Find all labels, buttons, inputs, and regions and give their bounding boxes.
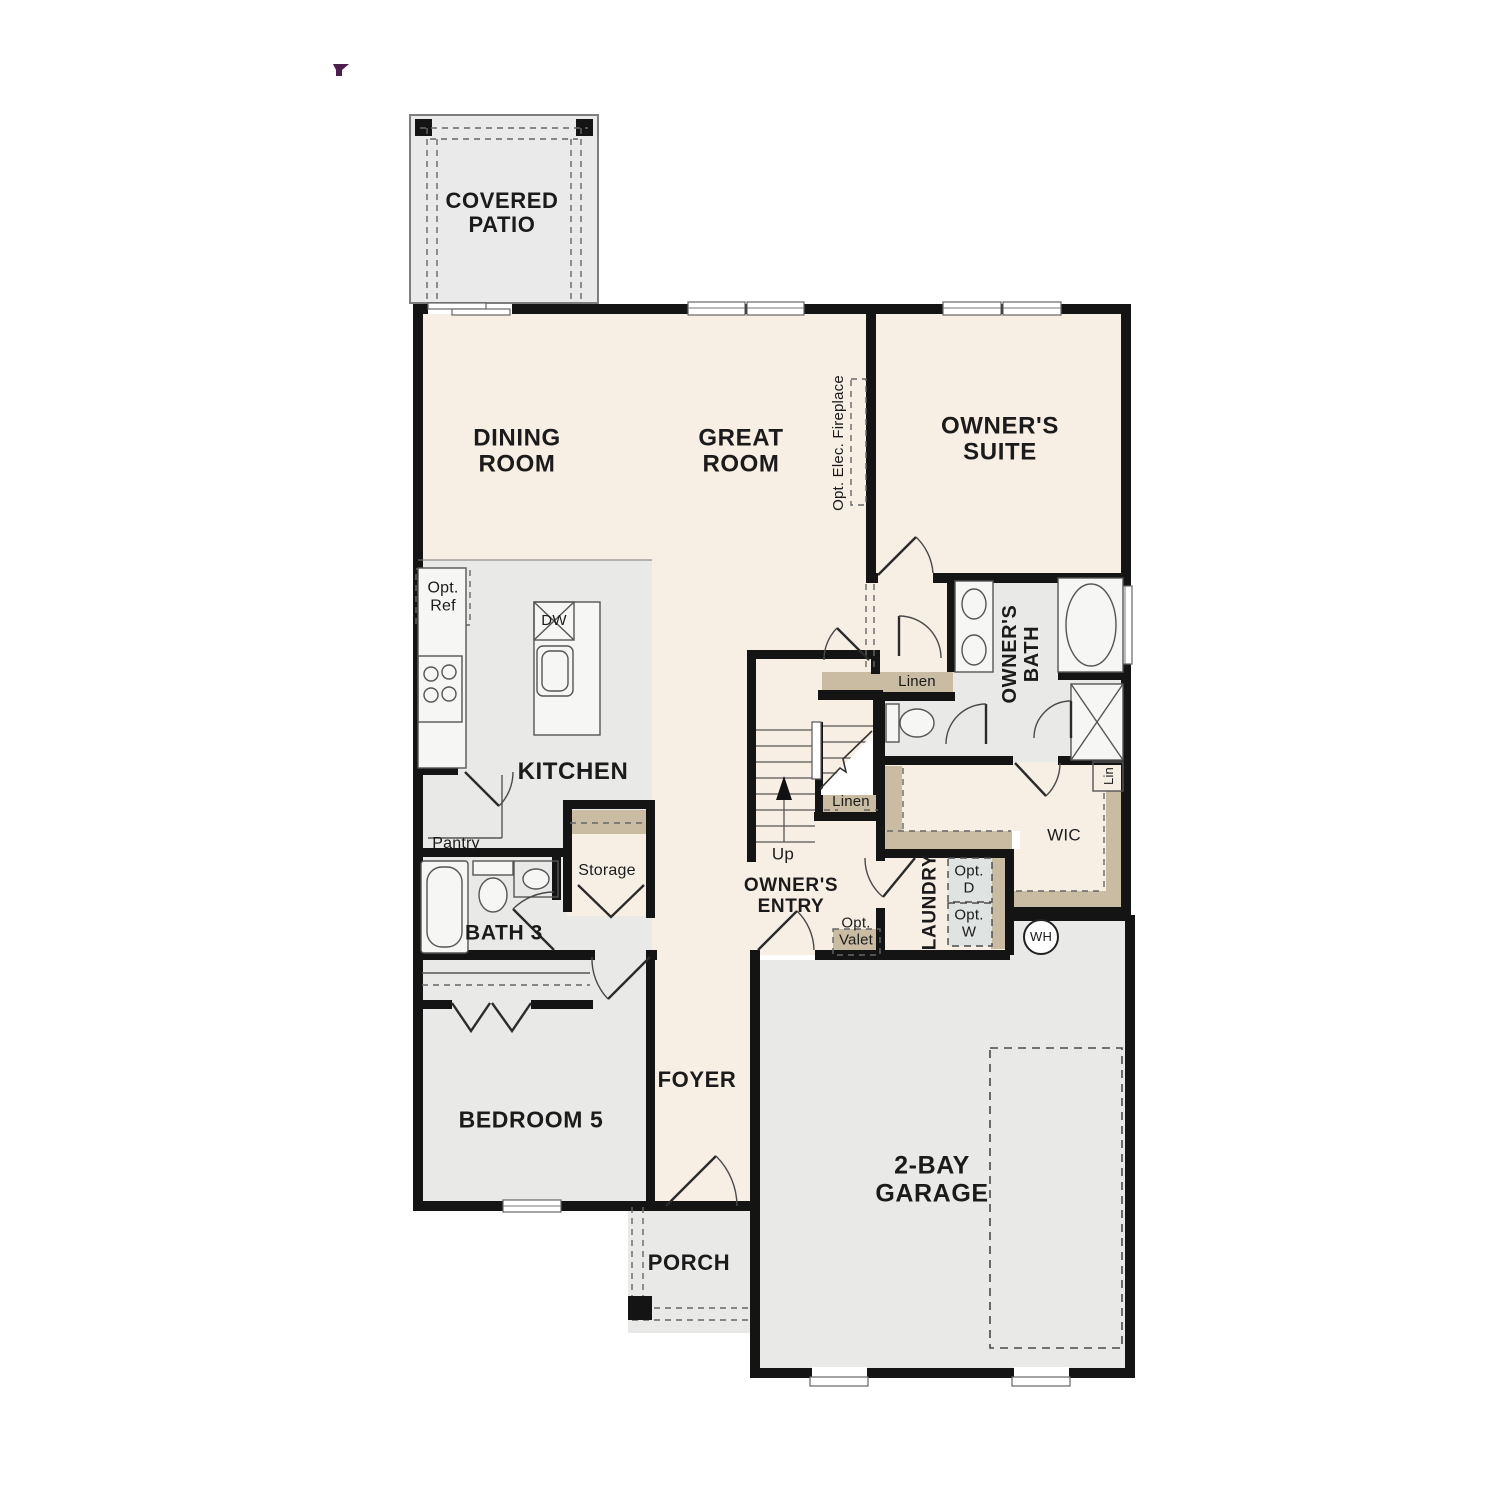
- room-label-bath3: BATH 3: [465, 921, 543, 944]
- floor-plan-canvas: COVERED PATIO DINING ROOM GREAT ROOM Opt…: [0, 0, 1500, 1500]
- room-label-great: GREAT ROOM: [698, 426, 783, 479]
- room-label-covered-patio: COVERED PATIO: [446, 189, 559, 237]
- callout-wic: WIC: [1047, 827, 1081, 846]
- laundry-shelf: [991, 857, 1005, 949]
- room-label-bedroom5: BEDROOM 5: [459, 1107, 604, 1132]
- room-label-owners-suite: OWNER'S SUITE: [941, 414, 1059, 467]
- callout-storage: Storage: [578, 862, 635, 880]
- callout-opt-valet: Opt. Valet: [839, 916, 873, 949]
- room-label-garage: 2-BAY GARAGE: [875, 1153, 988, 1208]
- callout-lin: Lin: [1102, 767, 1116, 785]
- wic-shelf-mid: [885, 831, 1014, 849]
- porch-post: [628, 1296, 652, 1320]
- owners-vanity: [955, 581, 993, 672]
- wic-shelf-right: [1106, 791, 1122, 909]
- garage-door: [1012, 1377, 1070, 1386]
- room-label-kitchen: KITCHEN: [518, 759, 629, 785]
- room-label-foyer: FOYER: [658, 1068, 737, 1092]
- callout-linen-stairs: Linen: [832, 794, 870, 811]
- callout-pantry: Pantry: [432, 835, 479, 853]
- stair-newel: [812, 722, 821, 779]
- wic-shelf-gap: [1012, 831, 1020, 849]
- callout-opt-dryer: Opt. D: [954, 864, 983, 897]
- callout-dishwasher: DW: [541, 613, 566, 630]
- callout-opt-washer: Opt. W: [954, 908, 983, 941]
- room-label-dining: DINING ROOM: [473, 426, 561, 479]
- garage-floor: [755, 921, 1126, 1373]
- callout-water-heater: WH: [1030, 930, 1052, 944]
- wic-shelf-bottom: [1014, 891, 1106, 909]
- garage-door: [810, 1377, 868, 1386]
- room-label-owners-entry: OWNER'S ENTRY: [744, 876, 838, 918]
- owners-toilet: [900, 709, 934, 737]
- storage-shelf: [567, 810, 646, 834]
- room-label-porch: PORCH: [648, 1251, 730, 1275]
- floor-plan-drawing: [0, 0, 1500, 1500]
- callout-opt-ref: Opt. Ref: [427, 579, 458, 614]
- callout-opt-fireplace: Opt. Elec. Fireplace: [831, 375, 848, 511]
- room-label-laundry: LAUNDRY: [921, 854, 942, 950]
- sliding-door-panel: [452, 309, 510, 315]
- pointer-glyph: [333, 64, 349, 76]
- bath3-sink: [523, 869, 549, 889]
- owners-toilet-tank: [886, 704, 899, 742]
- sliding-door-panel: [428, 303, 486, 309]
- callout-up: Up: [772, 846, 794, 865]
- owners-tub: [1058, 578, 1123, 672]
- bath3-toilet-tank: [473, 861, 513, 875]
- room-label-owners-bath: OWNER'S BATH: [999, 605, 1043, 704]
- callout-linen-hall: Linen: [898, 674, 936, 691]
- bath3-toilet: [479, 878, 507, 912]
